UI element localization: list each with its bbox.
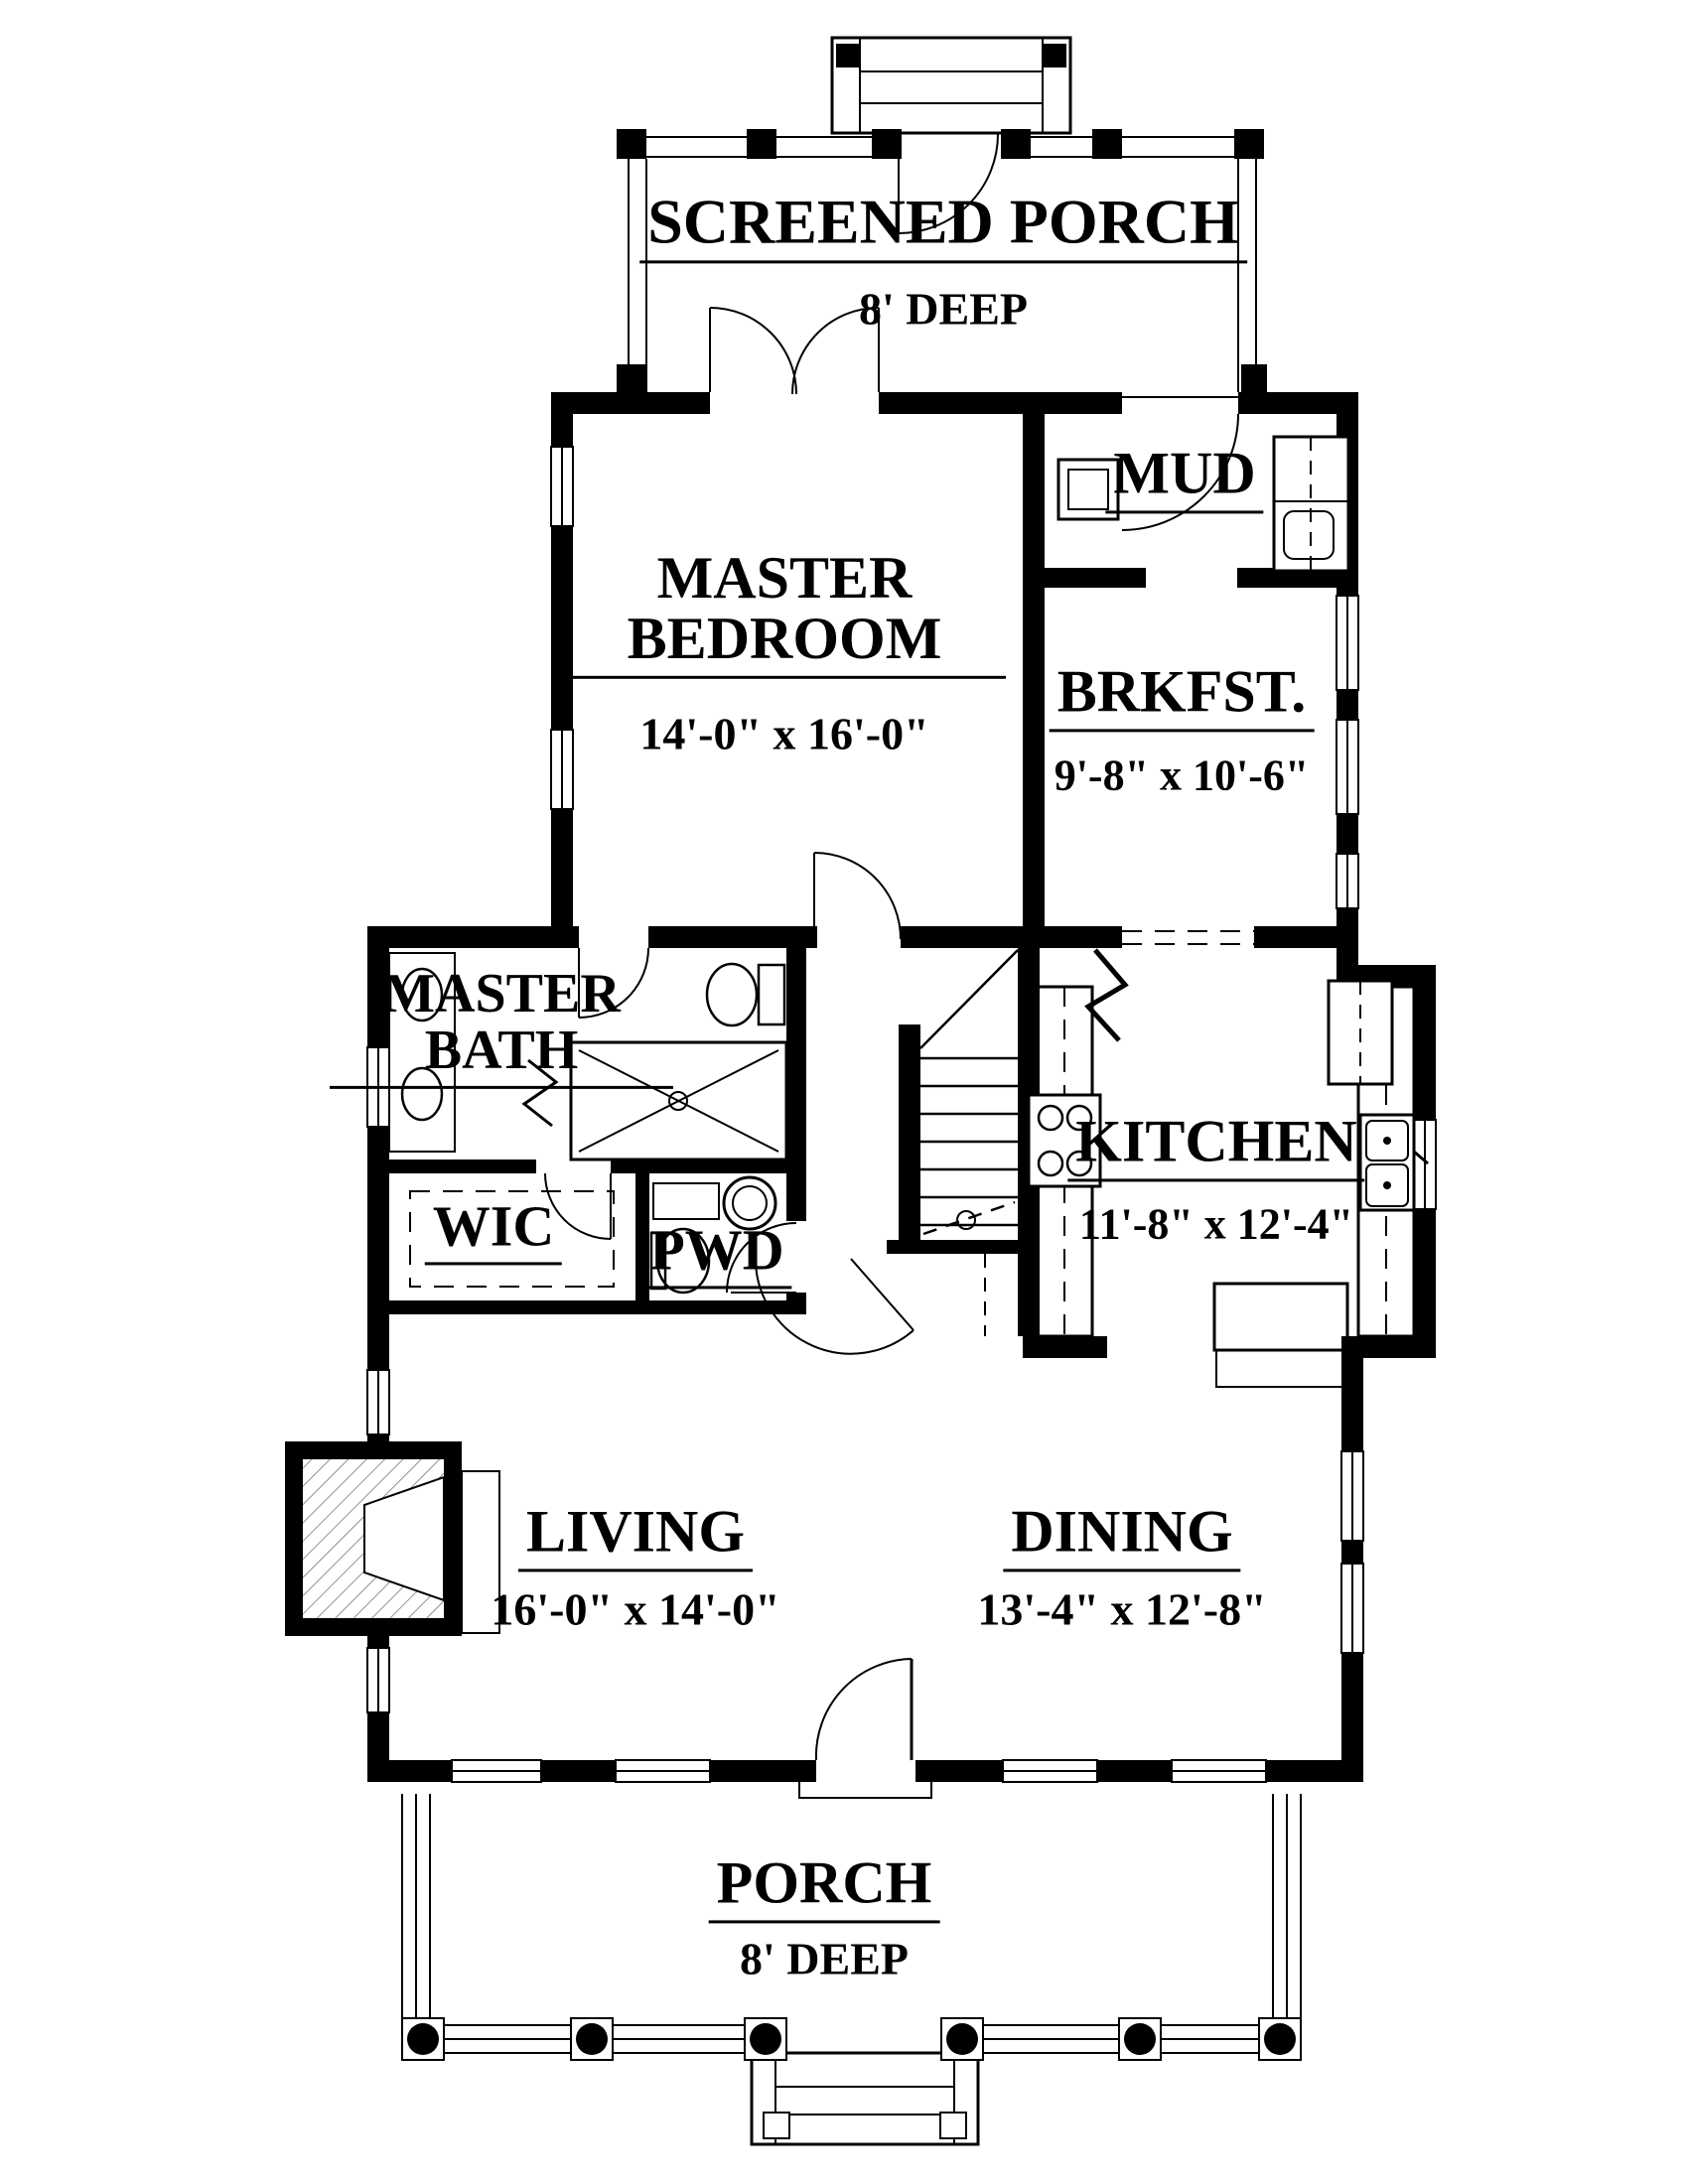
room-dims-porch: 8' DEEP [740, 1937, 909, 1983]
room-label-master-bath: MASTER BATH [330, 966, 673, 1089]
room-label-mud: MUD [1105, 443, 1263, 513]
room-dims-living: 16'-0" x 14'-0" [491, 1587, 779, 1634]
floor-plan-sheet: SCREENED PORCH 8' DEEP MUD MASTER BEDROO… [0, 0, 1688, 2184]
room-dims-kitchen: 11'-8" x 12'-4" [1079, 1203, 1353, 1248]
room-dims-brkfst: 9'-8" x 10'-6" [1055, 754, 1310, 799]
room-label-wic: WIC [425, 1196, 562, 1265]
room-label-porch: PORCH [709, 1852, 940, 1923]
staircase [920, 950, 1018, 1336]
room-label-kitchen: KITCHEN [1067, 1111, 1364, 1181]
room-label-screened-porch: SCREENED PORCH [639, 189, 1247, 263]
room-label-dining: DINING [1003, 1501, 1240, 1571]
fireplace [285, 1441, 499, 1636]
room-dims-master-bedroom: 14'-0" x 16'-0" [639, 712, 928, 758]
room-dims-screened-porch: 8' DEEP [859, 287, 1028, 334]
room-label-master-bedroom: MASTER BEDROOM [563, 548, 1006, 679]
room-label-living: LIVING [518, 1501, 753, 1571]
room-label-brkfst: BRKFST. [1050, 661, 1315, 732]
room-label-pwd: PWD [641, 1220, 791, 1289]
room-dims-dining: 13'-4" x 12'-8" [977, 1587, 1266, 1634]
